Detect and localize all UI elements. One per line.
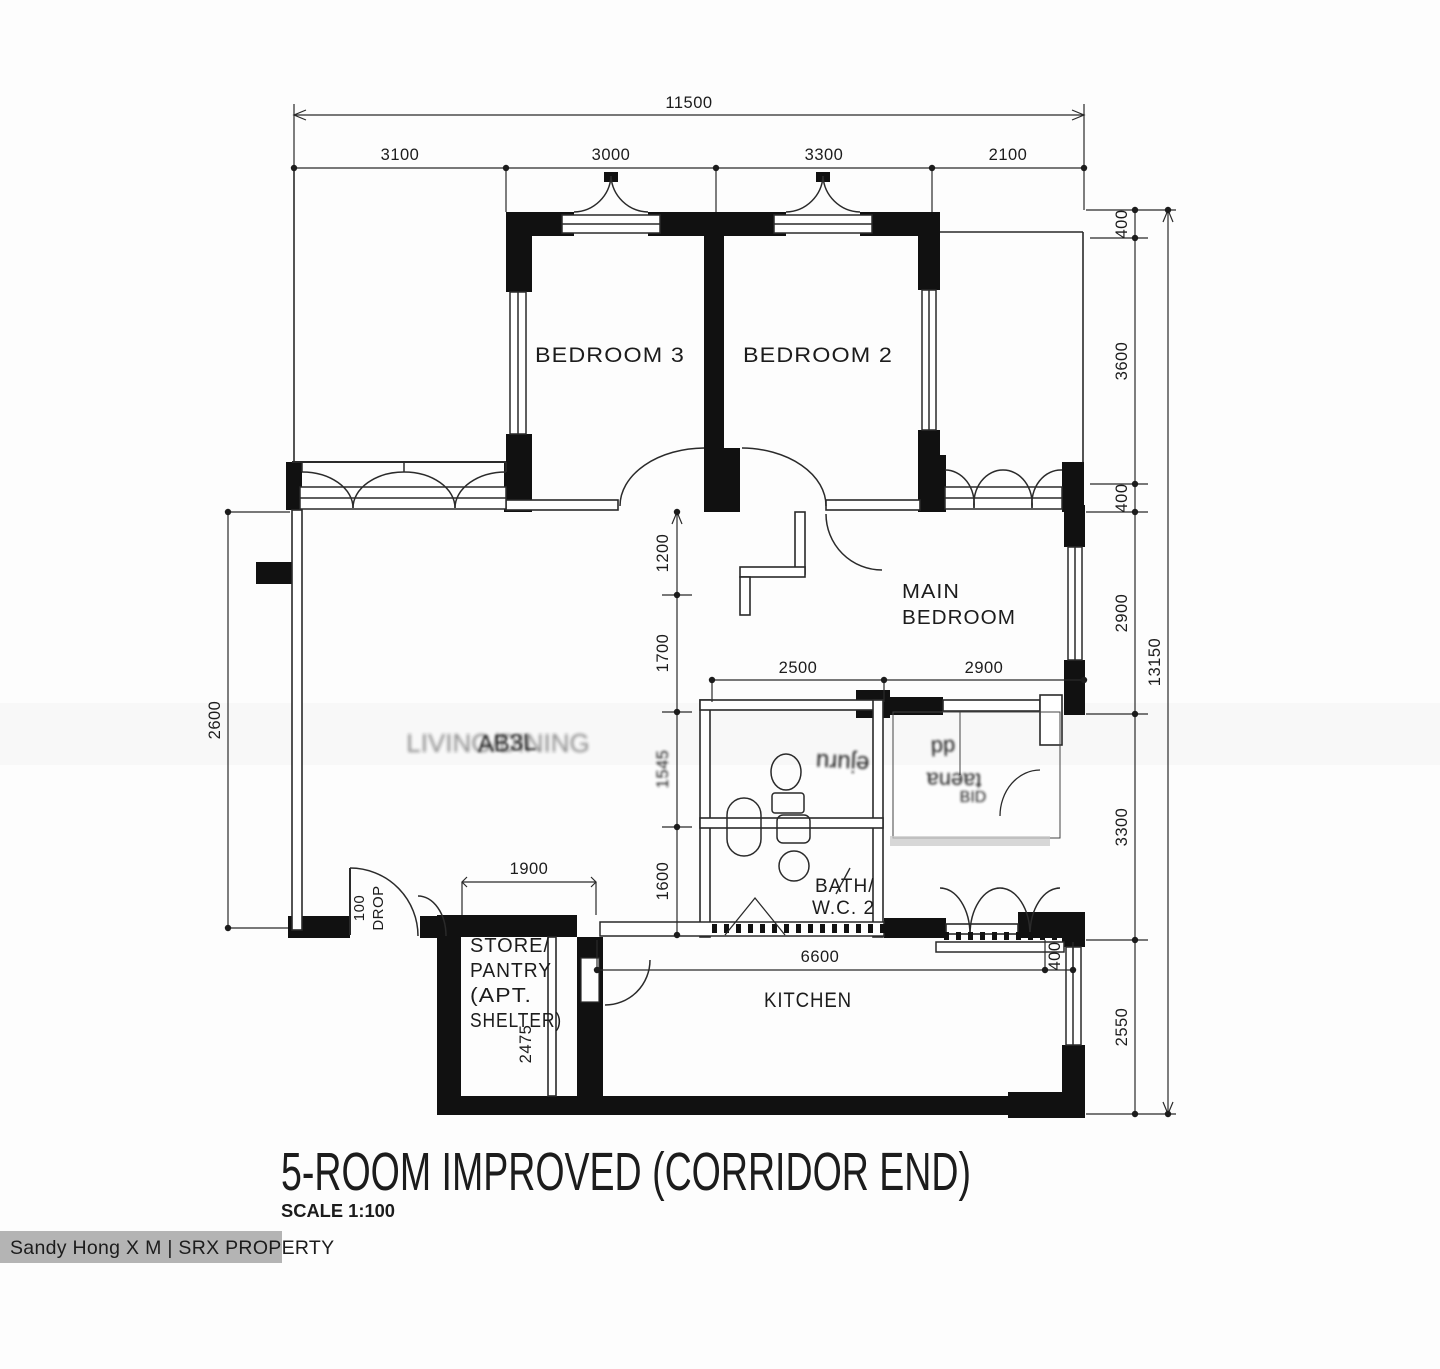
watermark-text: Sandy Hong X M | SRX PROPERTY bbox=[10, 1237, 334, 1259]
dim-2500: 2500 bbox=[779, 659, 818, 677]
dim-inner-1600: 1600 bbox=[654, 862, 672, 901]
label-living-smudge: AB3L bbox=[477, 729, 537, 758]
title-block: 5-ROOM IMPROVED (CORRIDOR END) SCALE 1:1… bbox=[281, 1142, 971, 1221]
dim-seg-3000: 3000 bbox=[592, 146, 631, 164]
dim-right-2900: 2900 bbox=[1113, 594, 1131, 633]
label-main-bedroom-1: MAIN bbox=[902, 581, 960, 603]
dim-right-400b: 400 bbox=[1113, 483, 1131, 512]
dim-1900: 1900 bbox=[510, 860, 549, 878]
dim-2900: 2900 bbox=[965, 659, 1004, 677]
watermark: Sandy Hong X M | SRX PROPERTY bbox=[0, 1231, 334, 1263]
note-drop: DROP bbox=[370, 885, 387, 930]
label-store-4: SHELTER) bbox=[470, 1010, 562, 1032]
dim-inner-1200: 1200 bbox=[654, 534, 672, 573]
dim-seg-2100: 2100 bbox=[989, 146, 1028, 164]
dim-seg-3300: 3300 bbox=[805, 146, 844, 164]
dimension-lines bbox=[228, 104, 1176, 1114]
label-main-bedroom-2: BEDROOM bbox=[902, 607, 1016, 629]
plan-title: 5-ROOM IMPROVED (CORRIDOR END) bbox=[281, 1142, 971, 1202]
label-bath1-garbled: ejuru bbox=[815, 748, 870, 778]
dim-inner-1700: 1700 bbox=[654, 634, 672, 673]
dim-right-400a: 400 bbox=[1113, 209, 1131, 238]
floor-plan-svg: 11500 3100 3000 3300 2100 400 3600 400 2… bbox=[0, 0, 1440, 1369]
note-100: 100 bbox=[351, 895, 368, 922]
dim-overall-width: 11500 bbox=[665, 94, 712, 112]
dim-right-3300: 3300 bbox=[1113, 808, 1131, 847]
label-store-1: STORE/ bbox=[470, 935, 550, 957]
label-bath-wc2-2: W.C. 2 bbox=[812, 898, 875, 919]
label-kitchen: KITCHEN bbox=[764, 989, 852, 1012]
label-side-garbled-3: BID bbox=[960, 789, 987, 806]
floor-plan-page: 11500 3100 3000 3300 2100 400 3600 400 2… bbox=[0, 0, 1440, 1369]
label-store-2: PANTRY bbox=[470, 960, 552, 982]
toilet-cistern-1 bbox=[772, 793, 804, 813]
dim-inner-1545: 1545 bbox=[654, 750, 672, 789]
label-store-3: (APT. bbox=[470, 985, 532, 1007]
dim-400-kitchen: 400 bbox=[1046, 941, 1064, 970]
dim-right-3600: 3600 bbox=[1113, 342, 1131, 381]
plan-scale: SCALE 1:100 bbox=[281, 1201, 395, 1221]
label-bedroom3: BEDROOM 3 bbox=[535, 344, 685, 367]
dim-overall-height: 13150 bbox=[1146, 638, 1164, 686]
dim-6600: 6600 bbox=[801, 948, 840, 966]
toilet-bowl-2 bbox=[779, 851, 809, 881]
dim-seg-3100: 3100 bbox=[381, 146, 420, 164]
label-bedroom2: BEDROOM 2 bbox=[743, 344, 893, 367]
label-side-garbled-1: dd bbox=[930, 735, 955, 761]
dim-left-2600: 2600 bbox=[206, 701, 224, 740]
dim-right-2550: 2550 bbox=[1113, 1008, 1131, 1047]
dimension-ticks bbox=[225, 165, 1171, 1117]
